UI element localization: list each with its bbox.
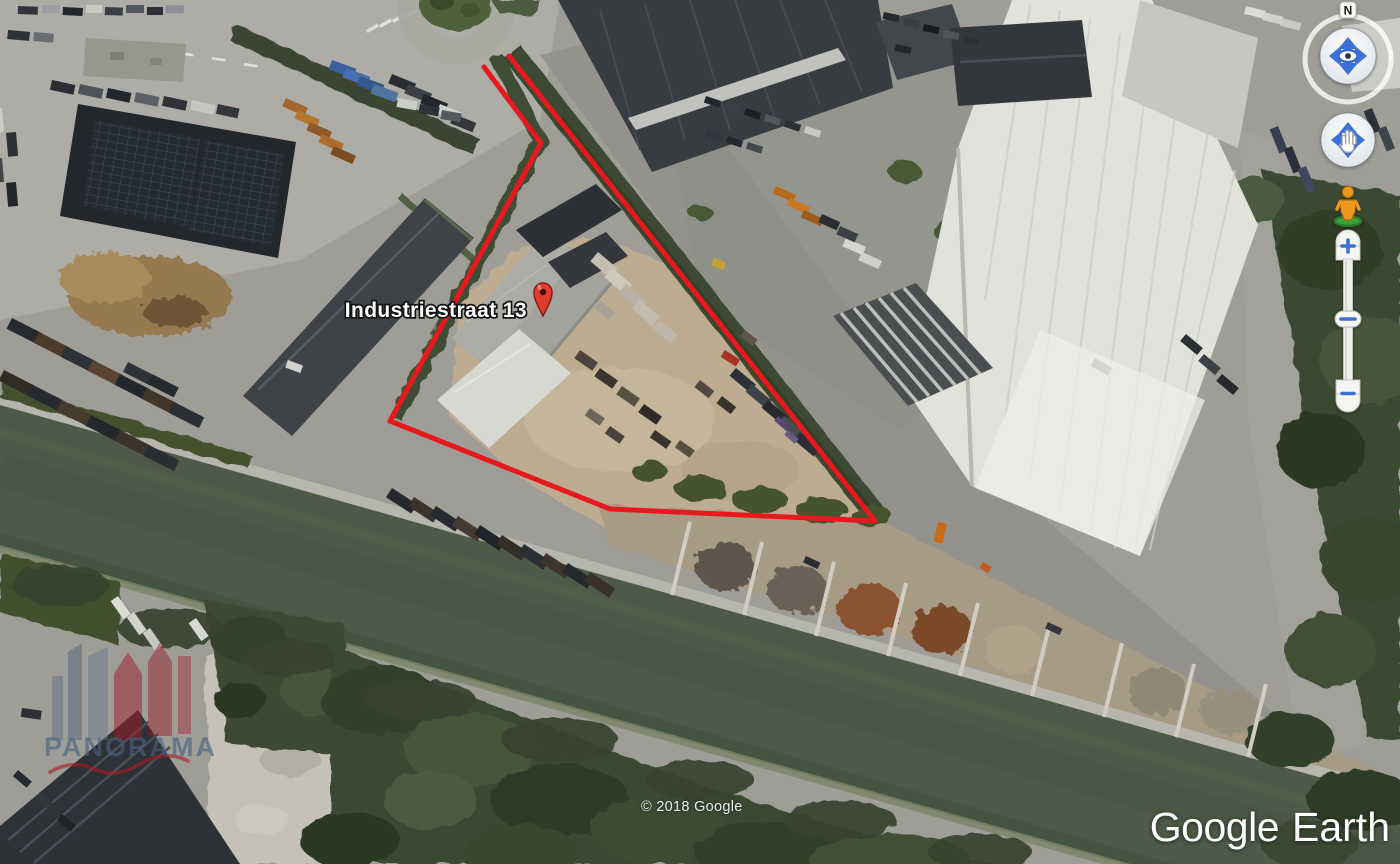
copyright-attribution: © 2018 Google [641,799,743,815]
earth-logo-text: Earth [1292,807,1390,848]
zoom-in-button[interactable] [1336,230,1360,260]
eye-icon [1339,50,1358,62]
google-earth-viewport[interactable]: Industriestraat 13 PANORAMA © 2018 Googl… [0,0,1400,864]
place-label: Industriestraat 13 [345,299,527,322]
zoom-slider-thumb[interactable] [1335,311,1361,327]
svg-text:N: N [1344,4,1353,18]
satellite-map[interactable]: Industriestraat 13 [0,0,1400,864]
north-indicator[interactable]: N [1340,2,1356,18]
look-joystick[interactable] [1320,28,1376,84]
pan-joystick[interactable] [1321,113,1375,167]
google-logo-text: Google [1150,807,1279,848]
zoom-out-button[interactable] [1336,380,1360,412]
pegman-icon[interactable] [1335,186,1361,225]
navigation-controls: N [1294,0,1400,420]
google-earth-logo: Google Earth [1150,807,1390,848]
